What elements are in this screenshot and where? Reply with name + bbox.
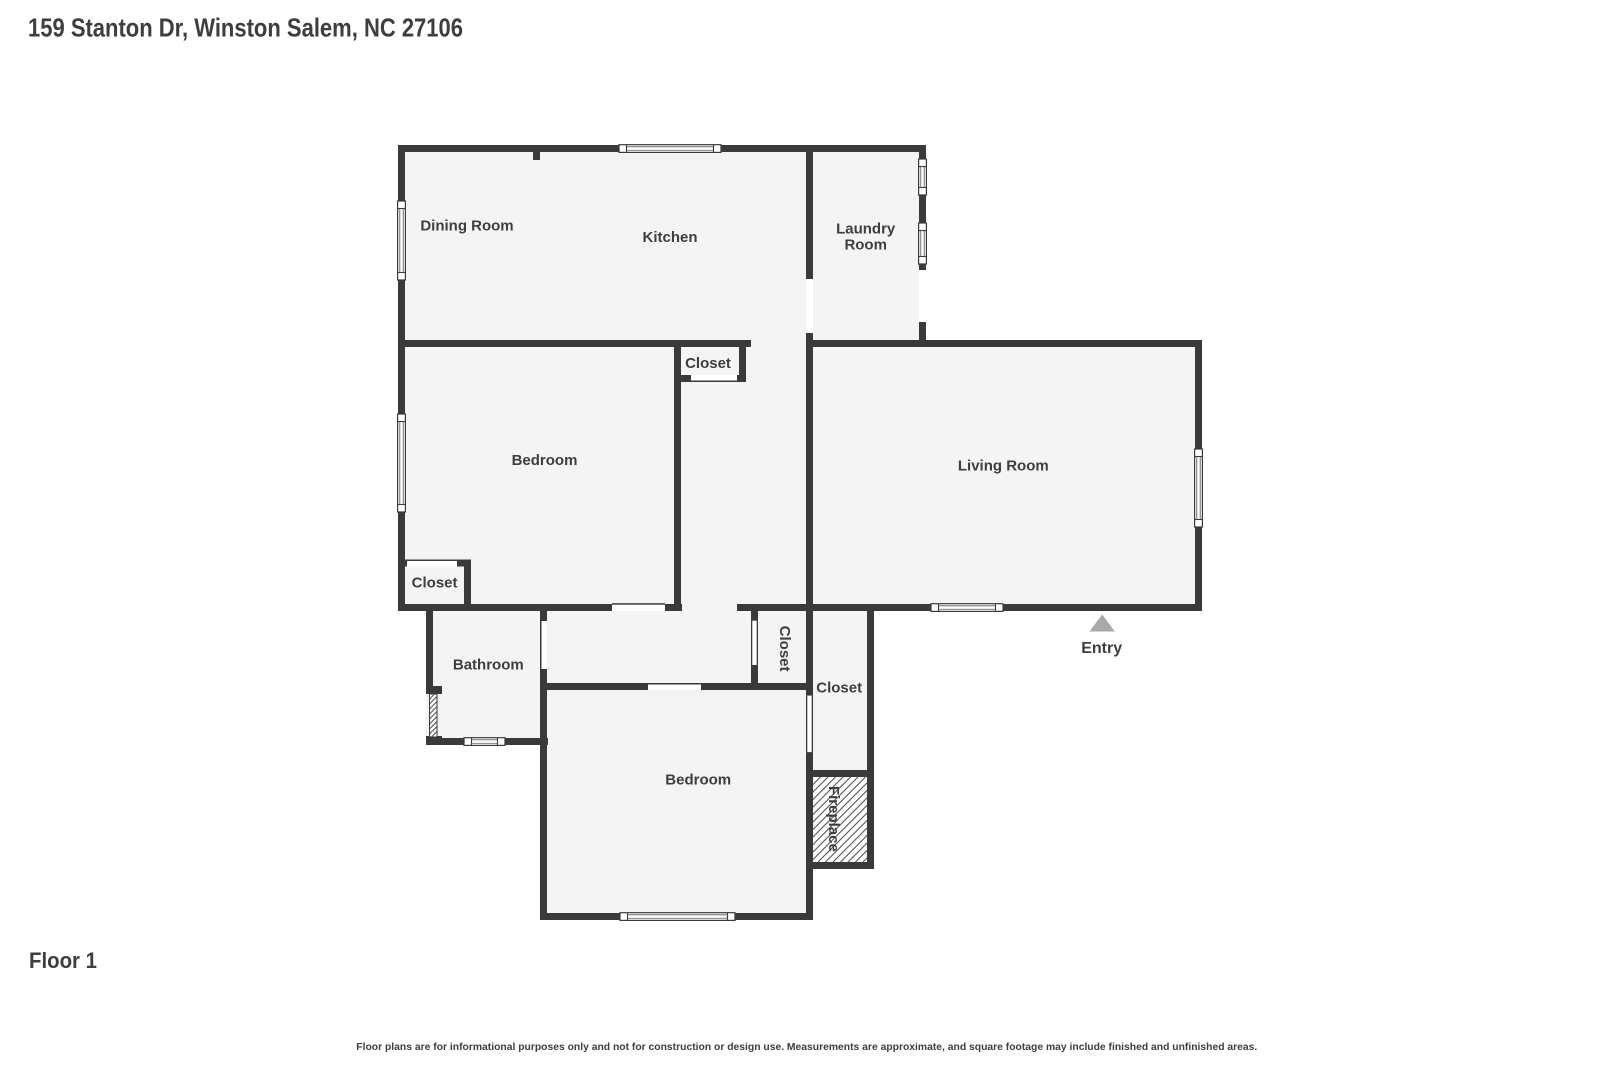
svg-text:Closet: Closet — [816, 680, 862, 697]
svg-text:Closet: Closet — [685, 355, 731, 372]
svg-text:Closet: Closet — [412, 575, 458, 592]
svg-text:Floor 1: Floor 1 — [29, 948, 97, 973]
svg-text:Dining Room: Dining Room — [420, 218, 513, 235]
svg-text:Entry: Entry — [1081, 640, 1122, 657]
svg-text:Room: Room — [844, 237, 887, 254]
svg-text:Kitchen: Kitchen — [642, 229, 697, 246]
svg-text:Fireplace: Fireplace — [825, 786, 842, 852]
svg-text:Floor plans are for informatio: Floor plans are for informational purpos… — [356, 1041, 1257, 1053]
svg-text:Laundry: Laundry — [836, 221, 896, 238]
svg-text:Closet: Closet — [776, 626, 793, 672]
svg-text:Living Room: Living Room — [958, 458, 1049, 475]
svg-text:Bedroom: Bedroom — [665, 772, 731, 789]
svg-text:159 Stanton Dr, Winston Salem,: 159 Stanton Dr, Winston Salem, NC 27106 — [28, 13, 463, 43]
svg-text:Bathroom: Bathroom — [453, 657, 524, 674]
svg-text:Bedroom: Bedroom — [512, 452, 578, 469]
